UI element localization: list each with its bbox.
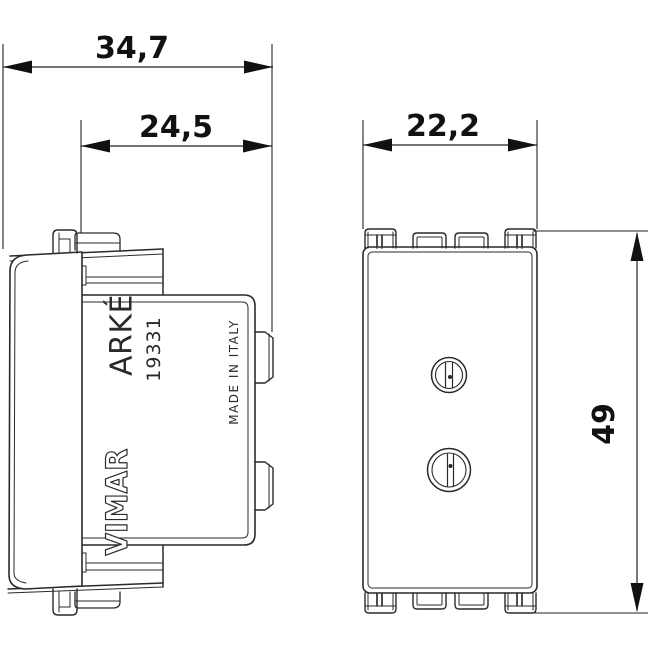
front-body-outline [363,247,537,593]
clip-tab-detail [506,593,535,610]
dimensional-drawing-svg: 34,7 24,5 22,2 49 [0,0,650,650]
origin-label: MADE IN ITALY [227,319,241,425]
arrowhead-right [508,139,537,152]
screw-inner-circle [436,362,463,389]
arrowhead-left [363,139,392,152]
arrowhead-left [81,140,110,153]
clip-tab [505,593,536,613]
side-top-tabs [53,230,120,253]
plain-tab [413,593,446,609]
front-top-tabs [365,229,536,248]
clip-tab-detail [366,232,395,248]
clip-tab-slot [517,235,522,248]
clip-tab [505,229,536,248]
clip-tab [365,229,396,248]
model-number-label: 19331 [143,316,165,381]
plain-tab-inner [417,593,442,605]
arrowhead-left [3,61,32,74]
arrowhead-down [631,583,644,612]
side-cover [9,252,82,589]
front-bottom-tabs [365,593,536,613]
front-view [363,229,537,613]
side-clip-top [255,332,273,383]
top-tab-inner [59,233,70,253]
plain-tab [455,233,488,248]
plain-tab [413,233,446,248]
side-texts: ARKÉ 19331 MADE IN ITALY VIMAR [100,294,241,555]
screw-center-dot [449,464,453,468]
bottom-tab-inner [59,592,70,612]
side-view: ARKÉ 19331 MADE IN ITALY VIMAR [8,230,273,615]
front-body-inner [368,252,532,588]
plain-tab [455,593,488,609]
bottom-bar [75,592,120,608]
top-bar [75,233,120,250]
arrowhead-right [243,140,272,153]
screw-outer-circle [428,449,471,492]
clip-tab-detail [506,232,535,248]
clip-tab-slot [377,593,382,606]
dimension-label-module-width: 22,2 [406,109,480,144]
dimension-module-width: 22,2 [363,109,537,229]
side-clip-bottom [255,462,273,510]
arrowhead-right [244,61,273,74]
dimension-label-overall-depth: 34,7 [95,31,169,66]
screw-outer-circle [432,358,467,393]
technical-drawing-canvas: 34,7 24,5 22,2 49 [0,0,650,650]
clip-tab [365,593,396,613]
dimension-module-height: 49 [532,231,648,613]
series-label: ARKÉ [104,294,140,376]
clip-tab-detail [366,593,395,610]
screw-inner-circle [432,453,466,487]
bottom-tab [53,589,77,615]
dimension-cage-depth: 24,5 [81,110,272,233]
plain-tab-inner [459,593,484,605]
top-tab [53,230,77,253]
clip-tab-slot [377,235,382,248]
side-bottom-tabs [53,589,120,615]
brand-label: VIMAR [100,449,134,556]
dimension-label-module-height: 49 [587,403,622,445]
cover-outline [9,252,82,589]
arrowhead-up [631,232,644,261]
dimension-label-cage-depth: 24,5 [139,110,213,145]
screw-center-dot [448,375,452,379]
screw-bottom [428,449,471,492]
clip-tab-slot [517,593,522,606]
screw-top [432,358,467,393]
